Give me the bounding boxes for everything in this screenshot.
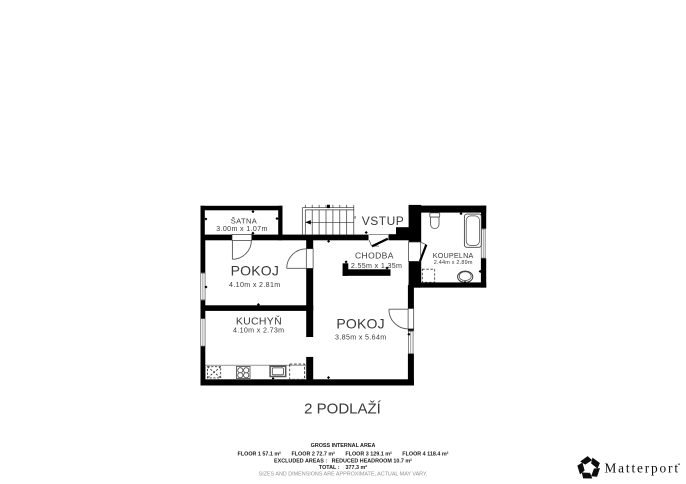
svg-text:VSTUP: VSTUP: [362, 214, 405, 228]
svg-text:EXCLUDED AREAS : REDUCED HEA: EXCLUDED AREAS : REDUCED HEADROOM 10.7 m…: [274, 459, 412, 465]
svg-text:4.10m x 2.73m: 4.10m x 2.73m: [233, 326, 284, 334]
svg-text:3.00m x 1.07m: 3.00m x 1.07m: [216, 225, 267, 233]
svg-text:KUCHYŇ: KUCHYŇ: [236, 314, 282, 327]
svg-text:SIZES AND DIMENSIONS ARE APPRO: SIZES AND DIMENSIONS ARE APPROXIMATE, AC…: [259, 471, 428, 477]
svg-text:GROSS INTERNAL AREA: GROSS INTERNAL AREA: [311, 443, 376, 449]
svg-text:TOTAL : 377.3 m²: TOTAL : 377.3 m²: [319, 465, 367, 471]
svg-text:3.85m x 5.64m: 3.85m x 5.64m: [335, 334, 386, 342]
svg-text:4.10m x 2.81m: 4.10m x 2.81m: [229, 281, 280, 289]
svg-text:2 PODLAŽÍ: 2 PODLAŽÍ: [304, 401, 382, 418]
svg-text:KOUPELNA: KOUPELNA: [433, 251, 474, 260]
svg-text:2.44m x 2.89m: 2.44m x 2.89m: [434, 260, 473, 266]
svg-text:POKOJ: POKOJ: [336, 316, 384, 332]
svg-text:POKOJ: POKOJ: [231, 263, 279, 279]
svg-text:2.55m x 1.35m: 2.55m x 1.35m: [351, 262, 402, 270]
svg-text:CHODBA: CHODBA: [355, 250, 394, 260]
svg-text:FLOOR 1 57.1 m² FLOOR 2: FLOOR 1 57.1 m² FLOOR 2 72.7 m² FLOOR 3 …: [238, 452, 449, 458]
svg-text:Matterport: Matterport: [605, 460, 680, 475]
